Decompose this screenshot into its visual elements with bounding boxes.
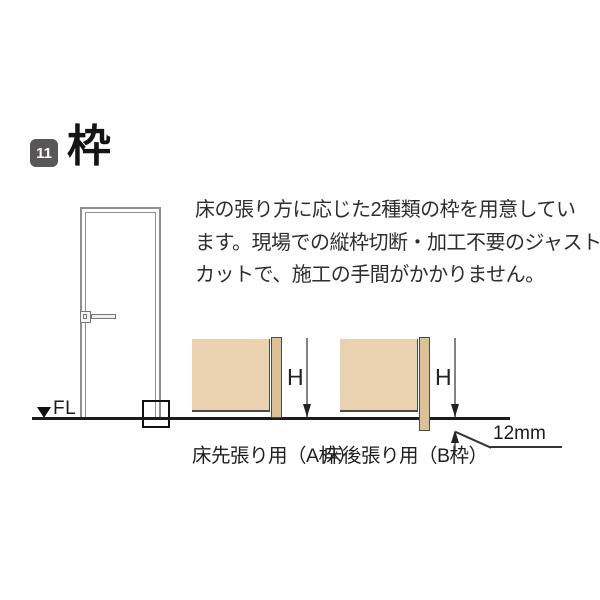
- offset-dimension-label: 12mm: [493, 423, 546, 445]
- section-number-badge: 11: [30, 139, 58, 167]
- frame-a-height-label: H: [287, 364, 304, 391]
- door-handle-lever: [91, 314, 116, 319]
- frame-b-caption: 床後張り用（B枠）: [323, 439, 488, 468]
- catalog-page: 11 枠 床の張り方に応じた2種類の枠を用意してい ます。現場での縦枠切断・加工…: [0, 0, 600, 600]
- floor-level-label: FL: [53, 398, 76, 420]
- offset-label-underline: [490, 446, 562, 448]
- frame-b-arrow-down-icon: [451, 404, 459, 417]
- frame-b-height-label: H: [435, 364, 452, 391]
- frame-a-vertical-frame: [271, 337, 282, 418]
- detail-callout-box: [142, 400, 170, 428]
- frame-a-arrow-down-icon: [303, 404, 311, 417]
- description-line-2: ます。現場での縦枠切断・加工不要のジャスト: [195, 227, 590, 260]
- description-paragraph: 床の張り方に応じた2種類の枠を用意してい ます。現場での縦枠切断・加工不要のジャ…: [195, 194, 590, 292]
- frame-b-vertical-frame: [419, 337, 430, 431]
- page-title: 枠: [67, 122, 111, 173]
- description-line-3: カットで、施工の手間がかかりません。: [195, 259, 590, 292]
- floor-level-triangle-icon: [37, 407, 51, 418]
- door-handle-spindle: [83, 314, 87, 319]
- description-line-1: 床の張り方に応じた2種類の枠を用意してい: [195, 194, 590, 227]
- frame-b-wall-section: [340, 339, 418, 412]
- frame-a-wall-section: [192, 339, 270, 412]
